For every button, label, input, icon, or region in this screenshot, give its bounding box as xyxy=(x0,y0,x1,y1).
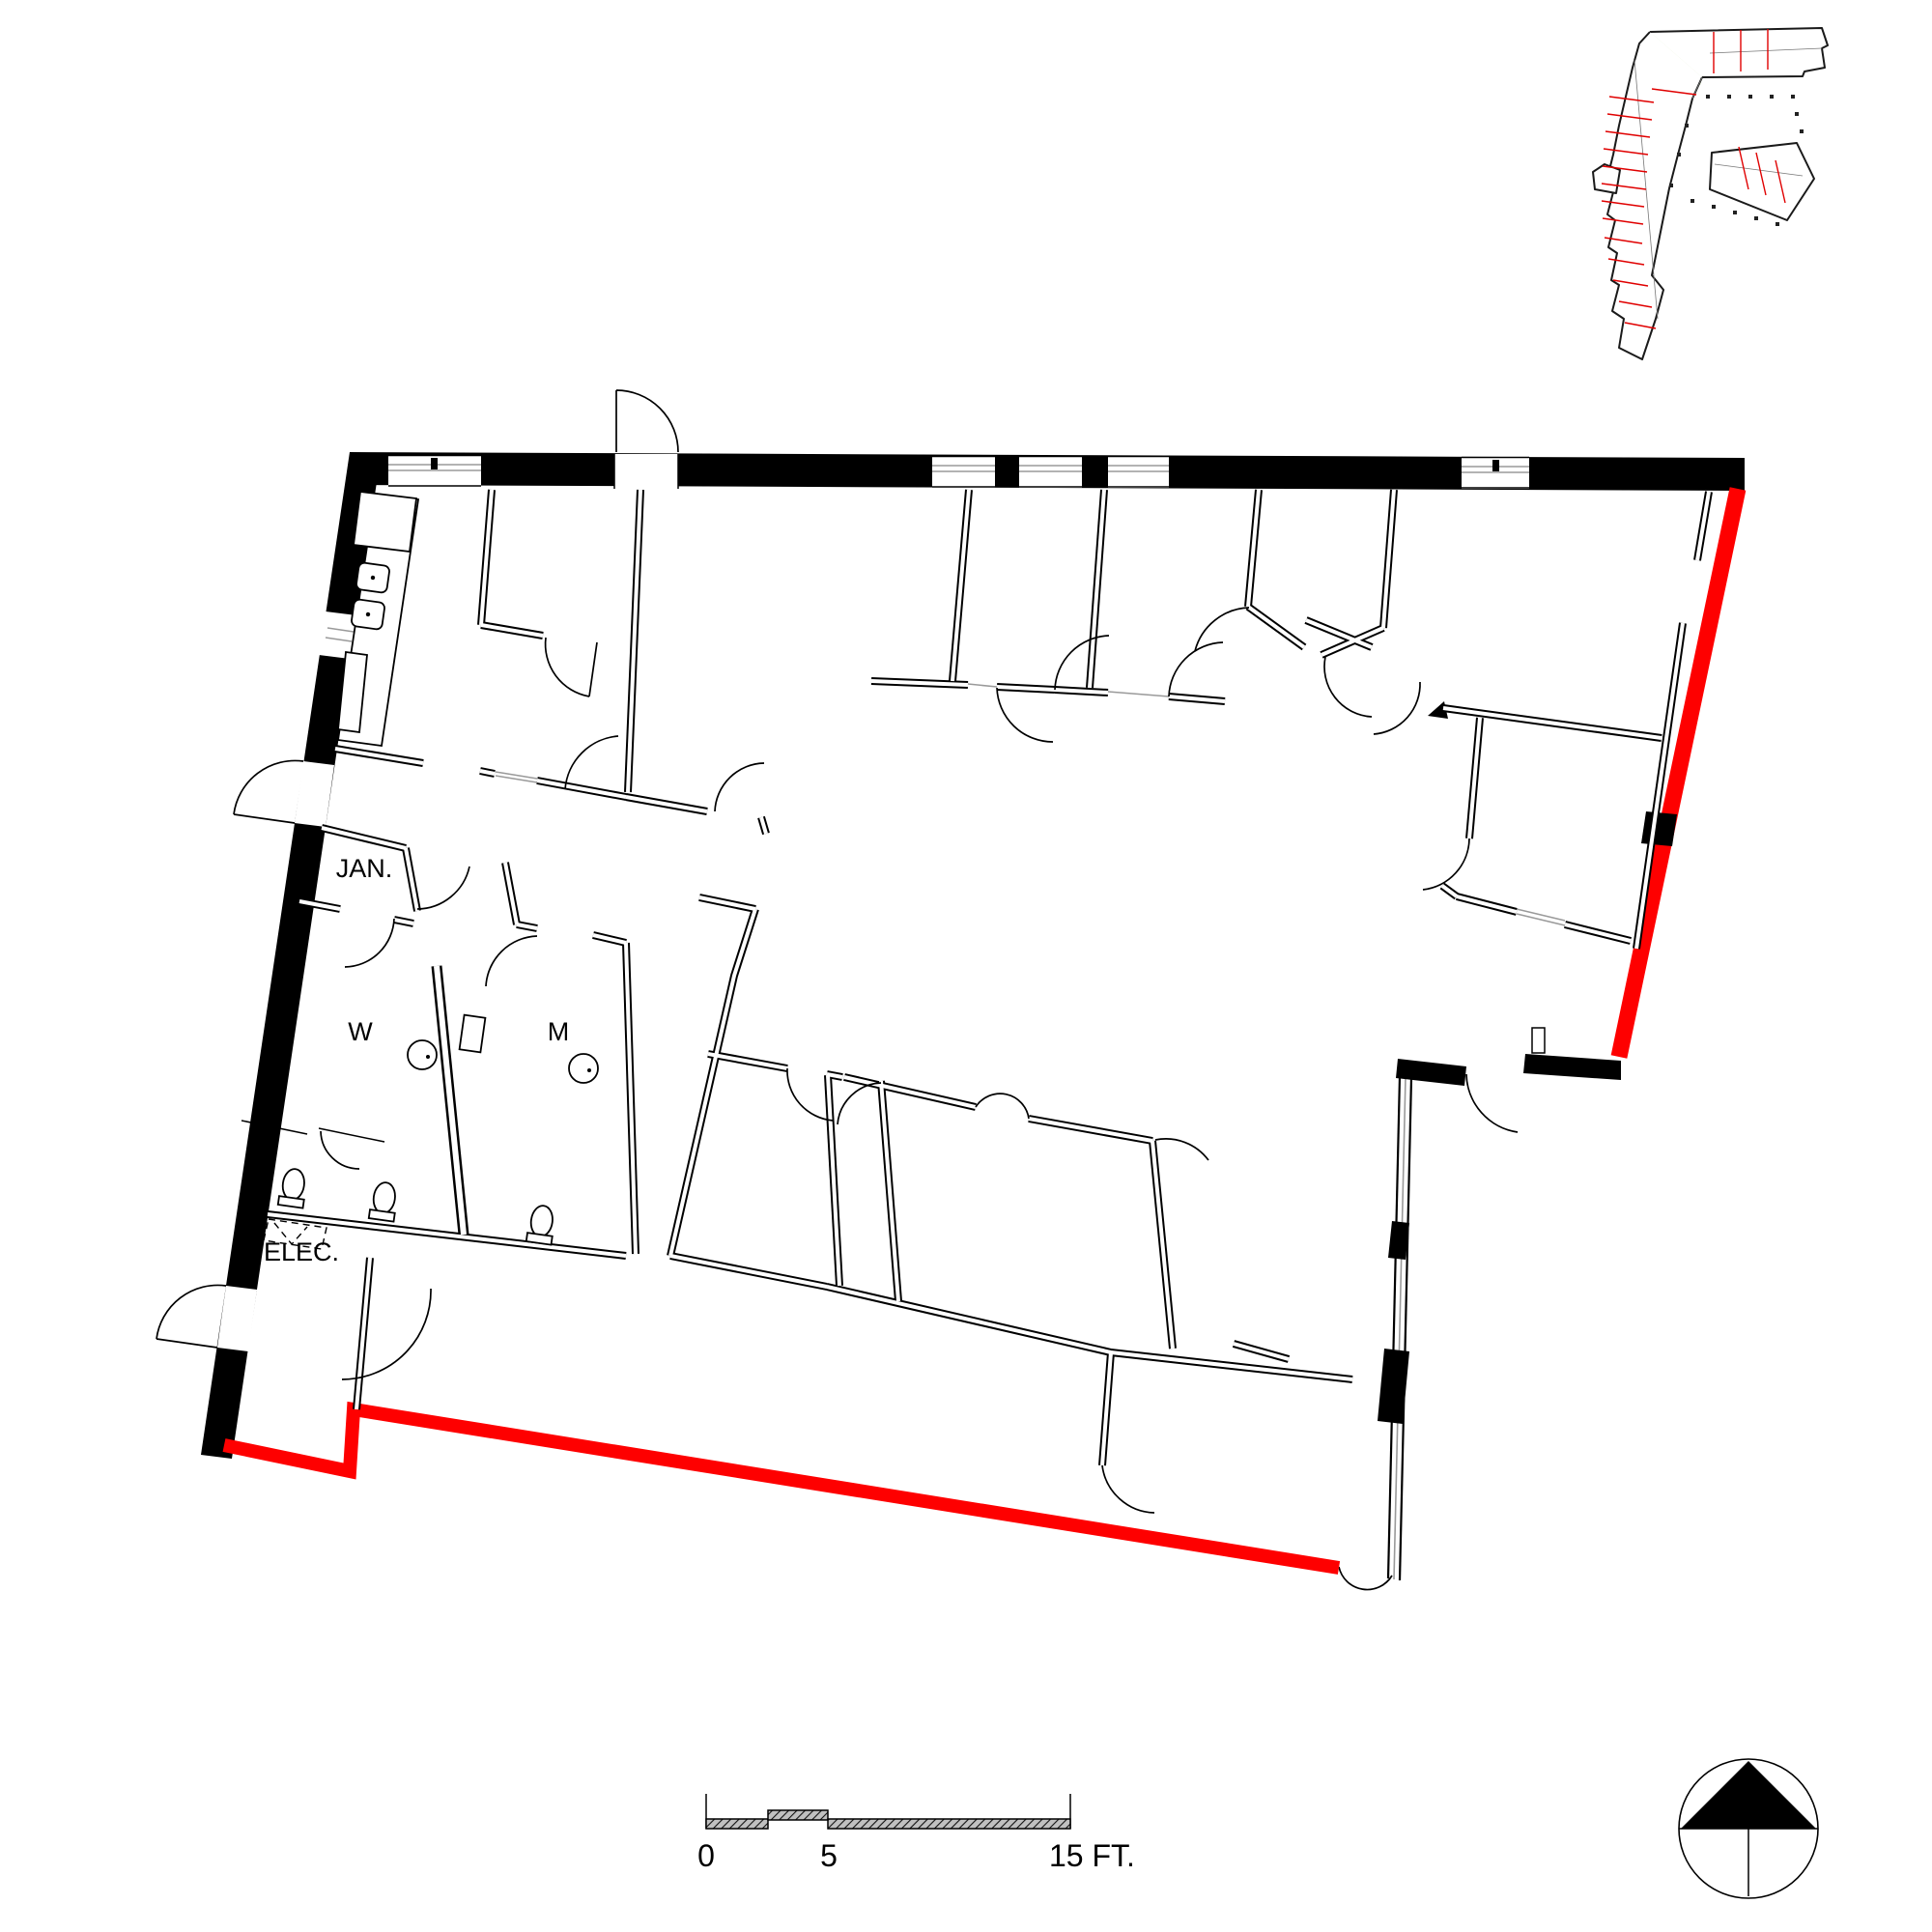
wall-core xyxy=(1457,896,1517,912)
scale-label-5: 5 xyxy=(820,1838,838,1873)
window-gap-3 xyxy=(1019,456,1082,488)
wall-core xyxy=(827,1287,1352,1379)
toilet xyxy=(278,1167,308,1207)
north-arrow xyxy=(1679,1759,1818,1898)
west-door-2 xyxy=(156,1285,257,1351)
wall-core xyxy=(670,1256,827,1287)
wall-core xyxy=(628,490,640,792)
red-wall-east xyxy=(1619,489,1738,1057)
red-wall-south xyxy=(224,1409,1339,1568)
north-arrow-triangle xyxy=(1681,1761,1816,1829)
wall-core xyxy=(699,897,755,909)
key-plan xyxy=(1593,28,1828,359)
column-block xyxy=(1641,811,1677,846)
lavatory-sink-w xyxy=(408,1040,437,1069)
label-janitor: JAN. xyxy=(336,854,393,883)
scale-label-15ft: 15 FT. xyxy=(1049,1838,1135,1873)
west-door-1 xyxy=(234,760,334,827)
wall-core xyxy=(406,848,417,911)
door-swing-arc xyxy=(1339,1567,1392,1590)
wall-core xyxy=(322,828,406,848)
wall-core xyxy=(708,1054,787,1068)
scale-segment xyxy=(706,1819,768,1829)
window-gap-4 xyxy=(1108,456,1169,488)
refrigerator xyxy=(354,492,416,552)
scale-segment xyxy=(768,1810,828,1820)
label-electrical: ELEC. xyxy=(264,1237,339,1266)
wall-core xyxy=(537,781,626,797)
exterior-west-wall xyxy=(156,452,381,1459)
wall-core xyxy=(437,966,464,1235)
wall-core xyxy=(881,1081,898,1301)
wall-core xyxy=(844,1077,976,1107)
wall-core xyxy=(952,490,969,681)
door-opening-north xyxy=(614,454,678,489)
scale-segment xyxy=(828,1819,1070,1829)
scale-label-0: 0 xyxy=(697,1838,715,1873)
label-mens: M xyxy=(548,1017,570,1046)
main-plan: JAN. W M ELEC. xyxy=(156,390,1745,1590)
floor-plan-drawing: JAN. W M ELEC. xyxy=(0,0,1932,1932)
sheet: JAN. W M ELEC. xyxy=(0,0,1932,1932)
wall-core xyxy=(1697,492,1709,560)
restroom-fixtures xyxy=(241,1015,598,1245)
wall-core xyxy=(356,1258,370,1409)
wall-core xyxy=(335,749,423,763)
wall-core xyxy=(1248,607,1304,647)
wall-core xyxy=(1234,1344,1289,1359)
wall-core xyxy=(828,1075,839,1286)
south-right-wall xyxy=(1396,1028,1621,1132)
exterior-southeast-wall xyxy=(1339,1076,1411,1590)
toilet xyxy=(369,1180,399,1221)
stall-partition xyxy=(319,1128,384,1142)
kitchen-sink-2 xyxy=(351,599,385,630)
window-gap-1 xyxy=(388,455,481,487)
wall-core xyxy=(1565,924,1631,941)
label-womens: W xyxy=(348,1017,373,1046)
wall-core xyxy=(505,863,517,924)
highlighted-demising-walls xyxy=(224,489,1738,1568)
exterior-north-wall xyxy=(350,390,1745,491)
wall-core xyxy=(626,797,707,811)
window-gap-5 xyxy=(1462,457,1529,489)
interior-walls xyxy=(268,490,1709,1465)
toilet xyxy=(526,1204,556,1244)
kitchen-sink-1 xyxy=(355,562,390,593)
wall-core xyxy=(1090,490,1104,688)
door-swing-arc xyxy=(1466,1074,1518,1132)
lavatory-sink-m xyxy=(569,1054,598,1083)
scale-bar: 0 5 15 FT. xyxy=(697,1794,1135,1873)
window-gap-2 xyxy=(932,456,995,488)
wall-core xyxy=(1152,1141,1173,1349)
urinal xyxy=(460,1015,486,1053)
wall-core xyxy=(1029,1119,1152,1141)
door-swing-arc xyxy=(616,390,678,452)
